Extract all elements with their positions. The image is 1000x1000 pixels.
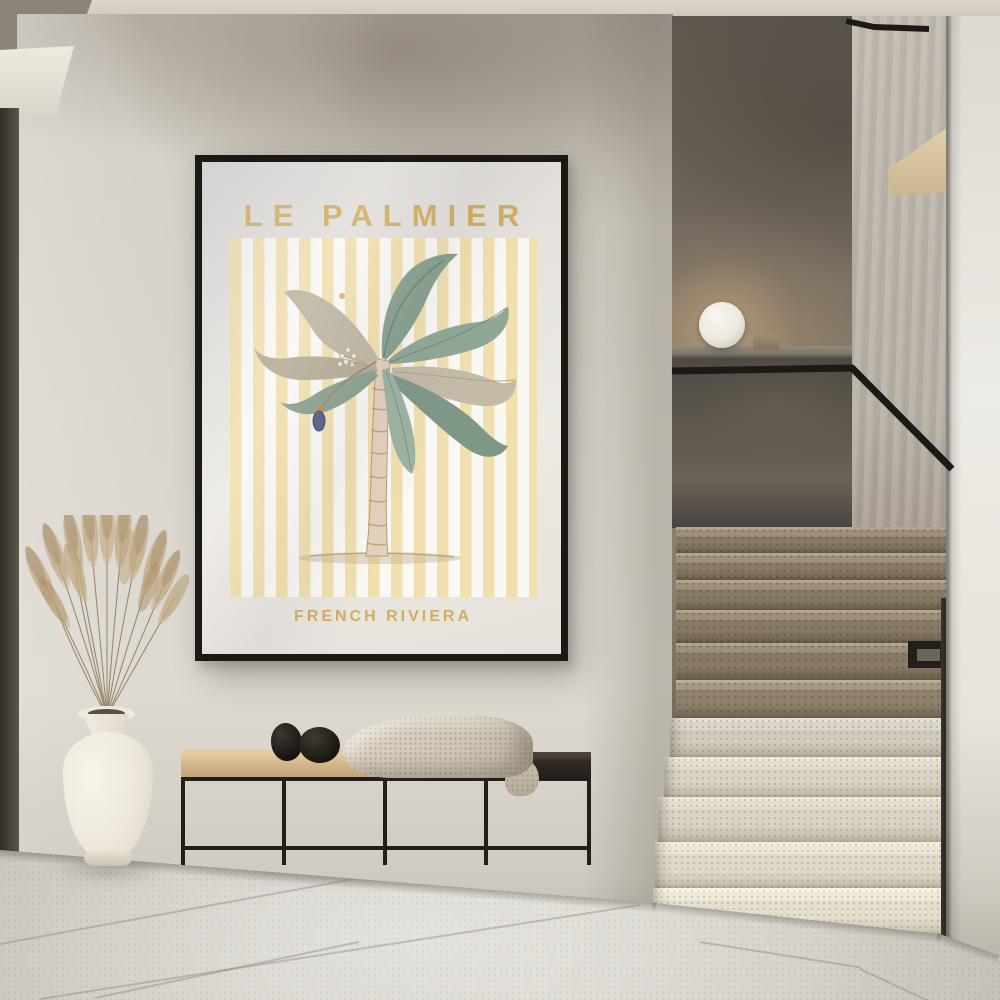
bench-leg bbox=[383, 777, 387, 865]
handrail-bracket-notch bbox=[917, 649, 940, 661]
poster: LE PALMIER bbox=[202, 162, 561, 654]
bench-leg bbox=[587, 777, 591, 865]
landing-half-wall bbox=[672, 358, 852, 528]
poster-frame: LE PALMIER bbox=[195, 155, 568, 661]
floor-seam bbox=[700, 941, 861, 968]
throw-blanket bbox=[343, 716, 533, 778]
bench-leg bbox=[484, 777, 488, 865]
bench-leg bbox=[282, 777, 286, 865]
stair-step bbox=[676, 527, 952, 553]
glass-reflection bbox=[202, 162, 561, 654]
floor-seam bbox=[860, 968, 933, 1000]
stair-step bbox=[655, 842, 952, 888]
vase-foot bbox=[84, 850, 132, 866]
sphere-lamp bbox=[699, 302, 745, 348]
right-foreground-wall bbox=[946, 16, 1000, 960]
stair-step bbox=[664, 757, 952, 797]
stair-step bbox=[676, 680, 952, 718]
ledge-object bbox=[753, 334, 779, 350]
stair-step bbox=[676, 580, 952, 610]
stair-step bbox=[658, 797, 952, 842]
stair-step bbox=[670, 718, 952, 757]
bench-bottom-rail bbox=[181, 846, 591, 850]
stair-step bbox=[676, 610, 952, 643]
floor-seam bbox=[0, 878, 354, 944]
pampas-grass bbox=[15, 515, 200, 730]
stair-step bbox=[676, 553, 952, 580]
door-frame bbox=[0, 108, 19, 854]
bench-leg bbox=[181, 777, 185, 865]
hallway-scene: LE PALMIER bbox=[0, 0, 1000, 1000]
floor-seam bbox=[95, 941, 359, 999]
